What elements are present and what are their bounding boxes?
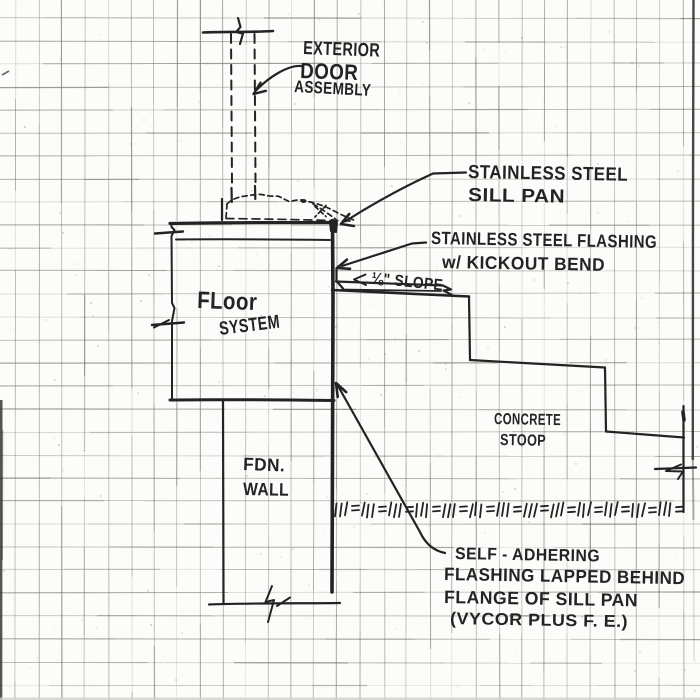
svg-text:FDN.: FDN. — [243, 454, 286, 475]
svg-text:SILL PAN: SILL PAN — [468, 185, 565, 208]
svg-text:CONCRETE: CONCRETE — [494, 411, 561, 429]
svg-text:ASSEMBLY: ASSEMBLY — [294, 77, 372, 100]
svg-text:(VYCOR PLUS F. E.): (VYCOR PLUS F. E.) — [450, 609, 628, 631]
svg-text:FLASHING LAPPED BEHIND: FLASHING LAPPED BEHIND — [444, 564, 685, 588]
svg-text:SELF - ADHERING: SELF - ADHERING — [455, 544, 600, 566]
svg-text:FLoor: FLoor — [197, 287, 258, 316]
svg-text:w/ KICKOUT BEND: w/ KICKOUT BEND — [441, 252, 605, 275]
svg-text:STAINLESS STEEL FLASHING: STAINLESS STEEL FLASHING — [431, 228, 657, 252]
svg-text:STOOP: STOOP — [500, 432, 546, 450]
svg-text:WALL: WALL — [243, 479, 289, 500]
svg-text:FLANGE OF SILL PAN: FLANGE OF SILL PAN — [444, 587, 638, 610]
svg-text:STAINLESS STEEL: STAINLESS STEEL — [468, 162, 628, 186]
